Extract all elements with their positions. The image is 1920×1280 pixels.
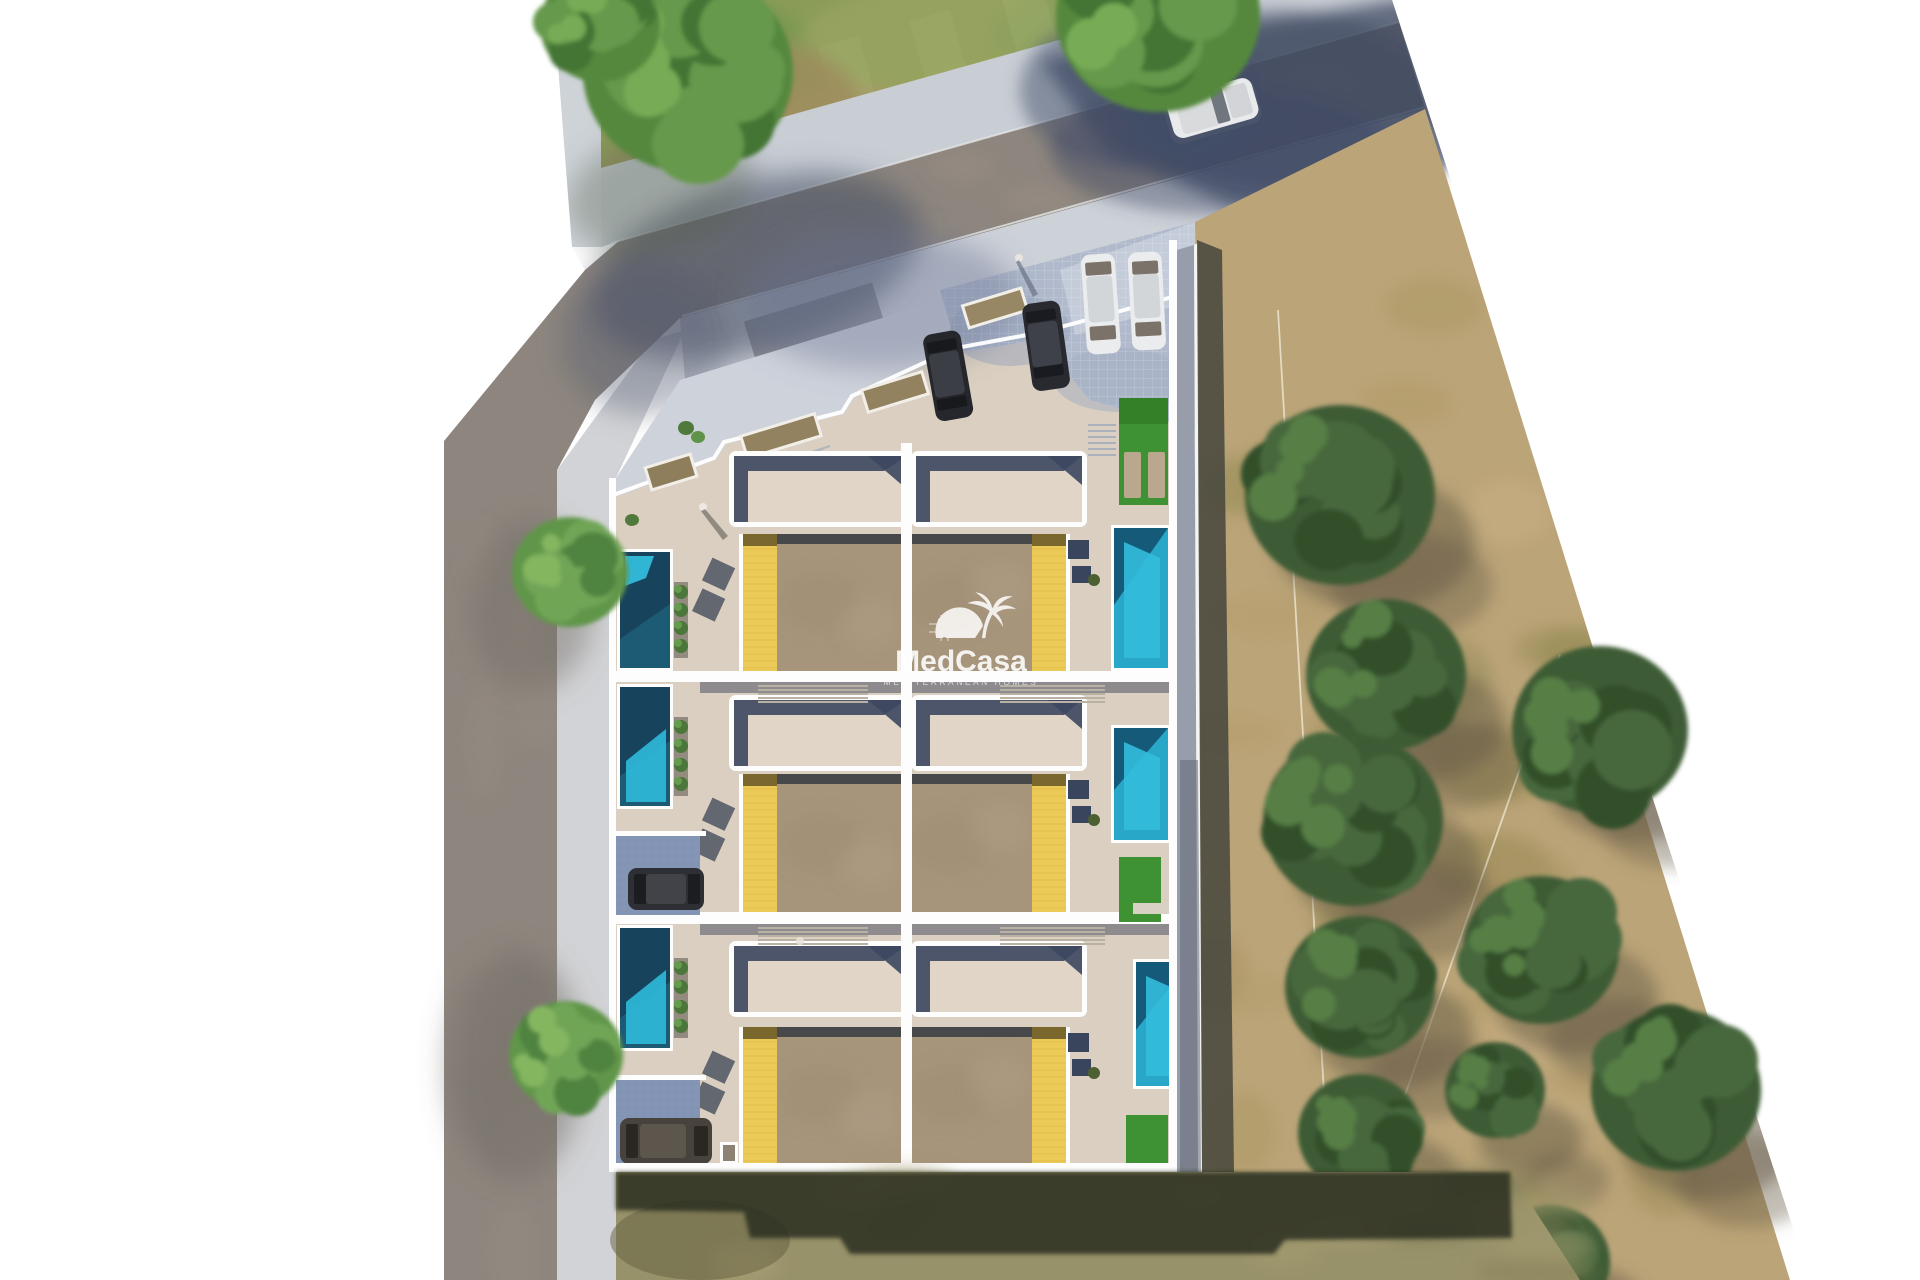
svg-text:MedCasa: MedCasa: [895, 645, 1027, 678]
svg-text:MEDITERRANEAN HOMES: MEDITERRANEAN HOMES: [884, 677, 1039, 687]
